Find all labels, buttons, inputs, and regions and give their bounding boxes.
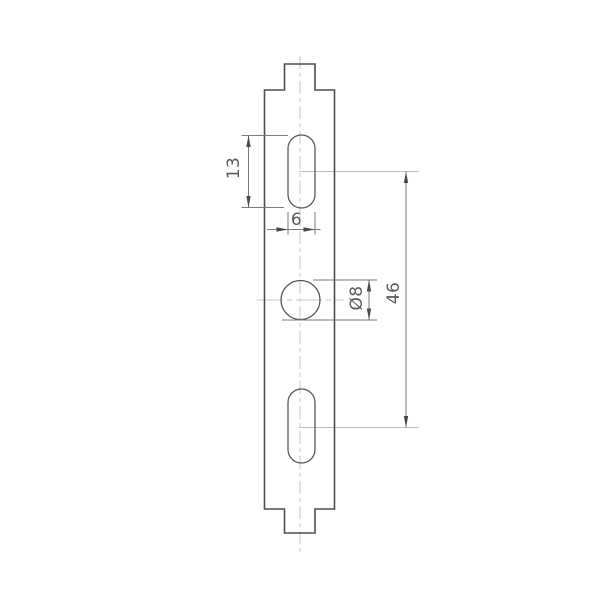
dimension-lines-group xyxy=(242,136,407,428)
dim46-arrow-up-icon xyxy=(404,172,408,184)
dim13-arrow-up-icon xyxy=(246,136,250,148)
dim46-arrow-down-icon xyxy=(404,416,408,428)
dim46-label: 46 xyxy=(384,282,404,304)
drawing-canvas: 13 6 Ø8 46 xyxy=(0,0,600,600)
dimension-arrows-group xyxy=(246,136,408,428)
dim13-arrow-down-icon xyxy=(246,196,250,208)
dim8-arrow-down-icon xyxy=(367,309,371,321)
technical-drawing: 13 6 Ø8 46 xyxy=(0,0,600,600)
centerlines-group xyxy=(257,56,344,554)
bottom-slot-hole xyxy=(288,389,315,463)
dimension-labels-group: 13 6 Ø8 46 xyxy=(224,157,404,311)
dim6-arrow-left-icon xyxy=(277,227,289,231)
dim6-label: 6 xyxy=(291,210,302,230)
dim6-arrow-right-icon xyxy=(304,227,316,231)
dim13-label: 13 xyxy=(224,157,244,179)
dim8-arrow-up-icon xyxy=(367,280,371,292)
dim8-label: Ø8 xyxy=(347,286,367,311)
